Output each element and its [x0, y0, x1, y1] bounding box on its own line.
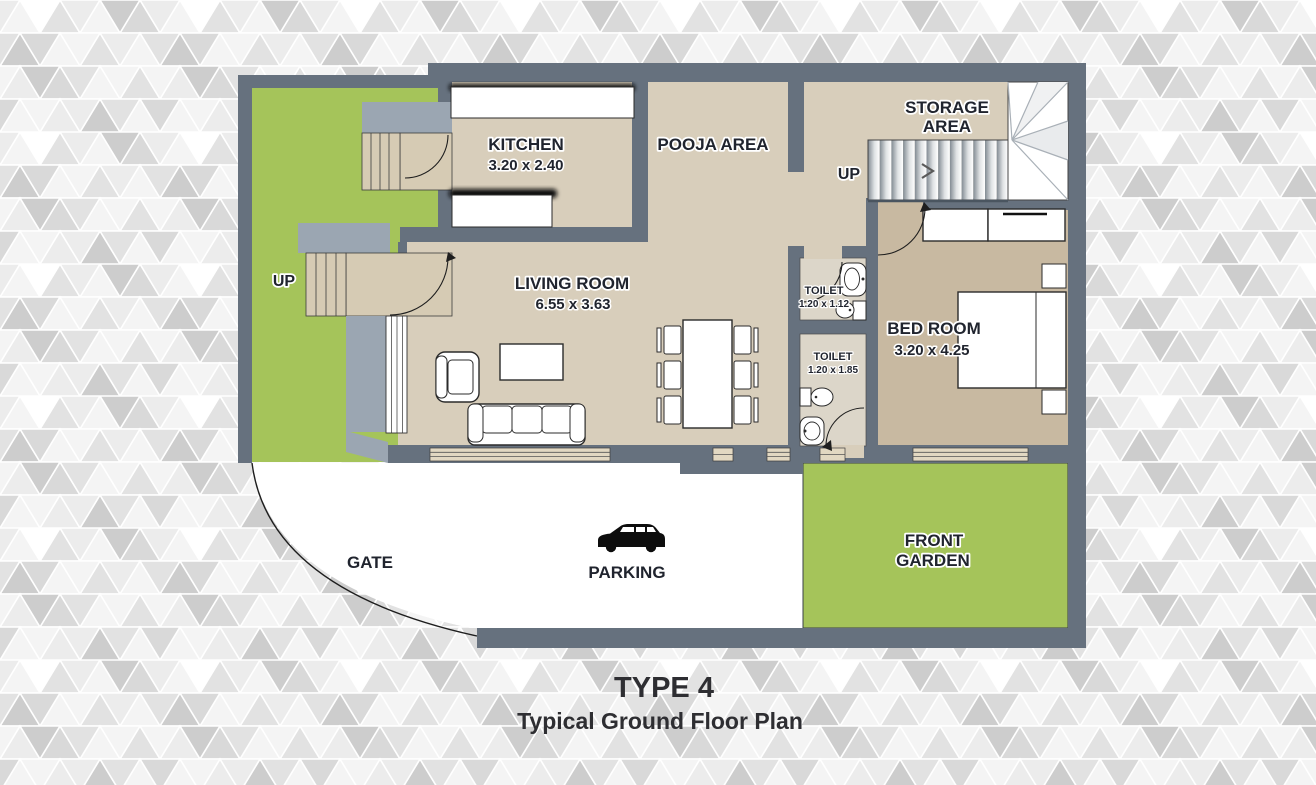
front-garden-label-1: FRONT: [905, 531, 964, 550]
coffee-table: [500, 344, 563, 380]
nightstand-top: [1042, 264, 1066, 288]
stairs-up-label: UP: [838, 166, 861, 183]
front-garden-label-2: GARDEN: [896, 551, 970, 570]
porch-kitchen-canopy: [362, 102, 452, 133]
plan-subtitle: Typical Ground Floor Plan: [517, 708, 803, 734]
kitchen-counter-side: [449, 189, 557, 227]
porch-kitchen-landing: [400, 133, 452, 190]
wall-pooja-right: [788, 82, 804, 172]
toilet-large-dim: 1.20 x 1.85: [808, 365, 858, 376]
lobby-window: [820, 448, 845, 461]
veranda-steps: [430, 448, 610, 461]
living-window-1: [713, 448, 733, 461]
wall-right-outer: [1068, 63, 1086, 648]
gate-label: GATE: [347, 553, 393, 572]
floor-plan-canvas: KITCHEN 3.20 x 2.40 POOJA AREA STORAGE A…: [0, 0, 1316, 785]
storage-area-label-1: STORAGE: [905, 98, 989, 117]
living-room-label: LIVING ROOM: [515, 274, 629, 293]
stair-winder: [1008, 82, 1068, 200]
toilet-small-door-opening: [804, 246, 842, 259]
toilet-large-label: TOILET: [814, 351, 853, 363]
porch-kitchen-steps: [362, 133, 400, 190]
porch-step-band: [680, 463, 803, 474]
wall-bottom-outer: [477, 628, 1086, 648]
pooja-area-label: POOJA AREA: [657, 135, 768, 154]
wall-kitchen-bottom: [400, 227, 648, 242]
wardrobe: [923, 209, 1065, 241]
washbasin-icon: [840, 263, 866, 296]
kitchen-counter-top: [449, 84, 635, 118]
bay-wall: [346, 316, 386, 432]
living-room-dim: 6.55 x 3.63: [535, 296, 610, 313]
stair-treads: [868, 140, 1008, 200]
kitchen-dim: 3.20 x 2.40: [488, 157, 563, 174]
entry-steps: [767, 448, 790, 461]
wall-top-main: [428, 63, 1086, 82]
dining-set: [657, 320, 758, 428]
kitchen-label: KITCHEN: [488, 135, 564, 154]
sofa: [468, 404, 585, 445]
wall-bedroom-left-upper: [866, 198, 878, 246]
porch-living-canopy: [298, 223, 390, 253]
bedroom-label: BED ROOM: [887, 319, 981, 338]
bedroom-window: [913, 448, 1028, 461]
dining-chairs-right: [734, 326, 758, 424]
toilet-small-dim: 1.20 x 1.12: [799, 299, 849, 310]
parking-label: PARKING: [588, 563, 665, 582]
bay-window: [386, 316, 407, 433]
armchair: [436, 352, 479, 402]
plan-type-title: TYPE 4: [614, 672, 714, 704]
storage-area-label-2: AREA: [923, 117, 971, 136]
wall-left-outer: [238, 75, 252, 463]
dining-table: [683, 320, 732, 428]
bedroom-dim: 3.20 x 4.25: [894, 342, 969, 359]
nightstand-bottom: [1042, 390, 1066, 414]
dining-chairs-left: [657, 326, 681, 424]
wc-icon: [800, 388, 833, 406]
porch-living-steps: [306, 253, 346, 316]
washbasin-icon: [800, 417, 824, 445]
porch-living-landing: [346, 253, 452, 316]
toilet-small-label: TOILET: [805, 285, 844, 297]
entrance-up-label: UP: [273, 273, 296, 290]
bottom-windows: [430, 448, 1028, 461]
wall-top-left: [238, 75, 445, 88]
